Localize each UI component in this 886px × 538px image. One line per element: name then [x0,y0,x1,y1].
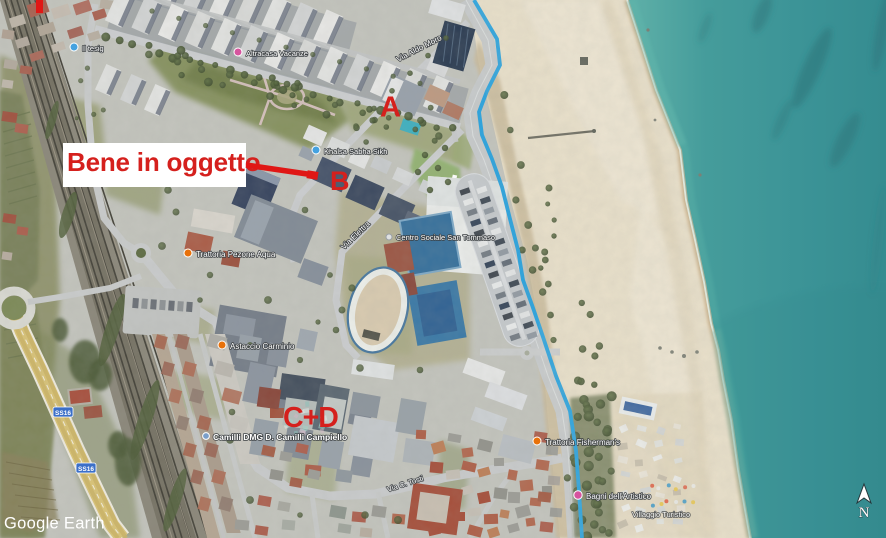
svg-text:Il tesig: Il tesig [82,44,104,53]
svg-text:Altracasa Vacanze: Altracasa Vacanze [246,49,308,58]
svg-text:Bagni dell'Artistico: Bagni dell'Artistico [586,492,652,501]
svg-text:Trattoria Pezone Aqua: Trattoria Pezone Aqua [196,250,276,259]
svg-text:Centro Sociale San Tommaso: Centro Sociale San Tommaso [396,233,495,242]
svg-text:B: B [330,166,350,196]
svg-text:Google Earth: Google Earth [4,515,105,533]
svg-text:Villaggio Turistico: Villaggio Turistico [632,510,690,519]
svg-text:A: A [380,92,401,124]
svg-text:Astaccio Carminio: Astaccio Carminio [230,342,295,351]
svg-text:Bene in oggetto: Bene in oggetto [67,147,260,177]
svg-text:SS16: SS16 [55,410,71,417]
svg-text:SS16: SS16 [78,466,94,473]
svg-text:Trattoria Fisherman's: Trattoria Fisherman's [545,438,620,447]
svg-text:N: N [859,505,870,521]
svg-text:C+D: C+D [283,402,338,434]
svg-text:Khalsa Sabha Sikh: Khalsa Sabha Sikh [324,147,387,156]
